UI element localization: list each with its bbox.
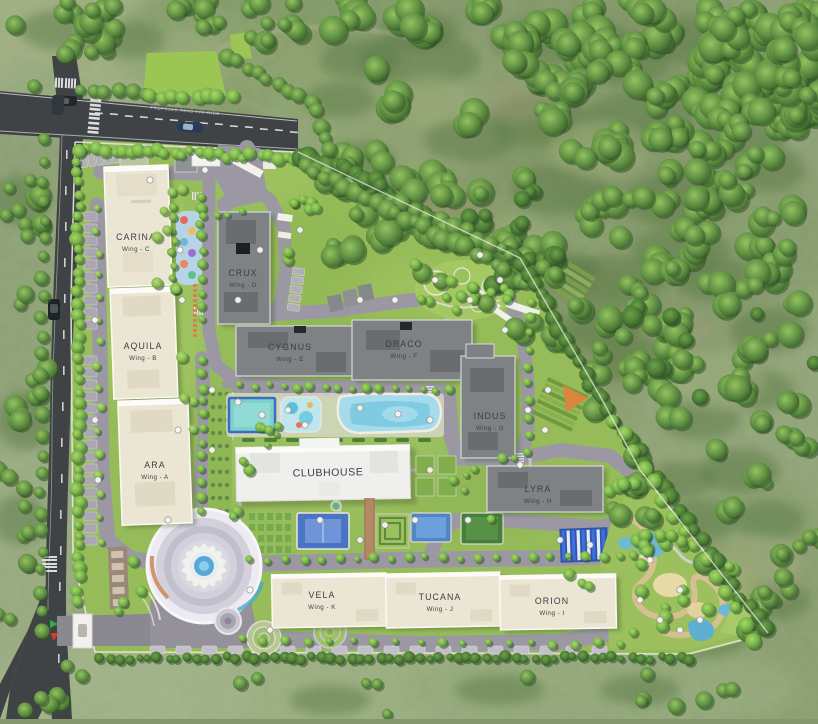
svg-text:ARA: ARA: [144, 460, 165, 470]
svg-text:ORION: ORION: [535, 596, 569, 606]
svg-text:Wing - E: Wing - E: [276, 356, 304, 363]
svg-text:VELA: VELA: [309, 590, 336, 600]
svg-text:Wing - G: Wing - G: [476, 425, 504, 432]
svg-text:LYRA: LYRA: [525, 484, 552, 494]
svg-text:CYGNUS: CYGNUS: [268, 342, 312, 352]
svg-text:Wing - B: Wing - B: [129, 355, 157, 362]
svg-text:CLUBHOUSE: CLUBHOUSE: [293, 466, 364, 479]
svg-text:CARINA: CARINA: [116, 232, 156, 242]
svg-text:CRUX: CRUX: [228, 268, 257, 278]
svg-text:Wing - C: Wing - C: [122, 246, 150, 253]
svg-text:INDUS: INDUS: [474, 411, 507, 421]
svg-text:Wing - A: Wing - A: [141, 474, 169, 481]
svg-text:Wing - D: Wing - D: [229, 282, 257, 289]
svg-text:Wing - F: Wing - F: [390, 353, 417, 360]
svg-text:Wing - K: Wing - K: [308, 604, 336, 611]
svg-text:Wing - I: Wing - I: [539, 610, 564, 617]
svg-text:Wing - J: Wing - J: [427, 606, 454, 613]
svg-text:AQUILA: AQUILA: [124, 341, 163, 351]
svg-text:DRACO: DRACO: [385, 339, 422, 349]
svg-text:TUCANA: TUCANA: [419, 592, 462, 602]
svg-text:Wing - H: Wing - H: [524, 498, 552, 505]
